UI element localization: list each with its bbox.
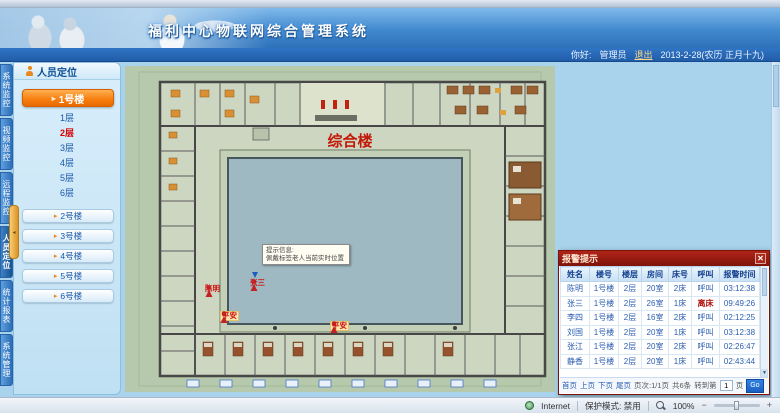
alarm-row[interactable]: 张江1号楼2层 20室2床 呼叫02:26:47 bbox=[561, 340, 760, 355]
column-header: 楼号 bbox=[590, 267, 619, 282]
nav-tab[interactable]: 统计报表 bbox=[0, 280, 13, 332]
nav-tab-label: 系统管理 bbox=[1, 342, 12, 378]
alarm-popup: 报警提示 ✕ 姓名楼号楼层房间床号呼叫报警时间 陈明1号楼 bbox=[558, 250, 770, 395]
divider bbox=[648, 401, 649, 411]
zoom-out-button[interactable]: − bbox=[701, 401, 706, 410]
zoom-level: 100% bbox=[673, 401, 695, 411]
person-marker[interactable]: 平安 bbox=[220, 311, 239, 321]
floor-list: 1层 2层 3层 4层 5层 6层 bbox=[14, 113, 120, 199]
person-marker-icon bbox=[250, 279, 258, 291]
sidebar-collapse-handle[interactable]: ◂ bbox=[9, 205, 19, 259]
building-button[interactable]: 4号楼 bbox=[22, 249, 114, 263]
page-last-link[interactable]: 尾页 bbox=[616, 380, 631, 391]
person-marker-icon bbox=[330, 321, 338, 333]
page-next-link[interactable]: 下页 bbox=[598, 380, 613, 391]
building-button-label: 4号楼 bbox=[60, 250, 82, 262]
zoom-in-button[interactable]: + bbox=[767, 401, 772, 410]
floor-item[interactable]: 2层 bbox=[60, 128, 74, 139]
greeting-label: 你好: bbox=[571, 48, 592, 61]
pin-icon bbox=[252, 272, 258, 278]
divider bbox=[577, 401, 578, 411]
app-title: 福利中心物联网综合管理系统 bbox=[148, 21, 369, 41]
nav-tab-label: 视频监控 bbox=[1, 126, 12, 162]
column-header: 报警时间 bbox=[720, 267, 760, 282]
page-info: 页次:1/1页 bbox=[634, 380, 669, 391]
floor-item[interactable]: 4层 bbox=[60, 158, 74, 169]
go-button[interactable]: Go bbox=[746, 379, 763, 393]
building-button[interactable]: 3号楼 bbox=[22, 229, 114, 243]
record-total: 共6条 bbox=[672, 380, 691, 391]
alarm-popup-title: 报警提示 bbox=[562, 252, 598, 265]
column-header: 呼叫 bbox=[692, 267, 720, 282]
alarm-scrollbar[interactable]: ▼ bbox=[760, 266, 768, 377]
globe-icon bbox=[525, 401, 534, 410]
nav-tab[interactable]: 视频监控 bbox=[0, 118, 13, 170]
floor-item[interactable]: 1层 bbox=[60, 113, 74, 124]
zoom-slider-thumb[interactable] bbox=[734, 401, 739, 410]
nav-tab-label: 系统监控 bbox=[1, 72, 12, 108]
goto-page-input[interactable] bbox=[720, 380, 733, 391]
alarm-row[interactable]: 张三1号楼2层 26室1床 离床09:49:26 bbox=[561, 296, 760, 311]
browser-statusbar: Internet 保护模式: 禁用 100% − + bbox=[0, 397, 780, 413]
tooltip-line2: 佩戴标签老人当前实时位置 bbox=[266, 255, 346, 263]
column-header: 房间 bbox=[642, 267, 669, 282]
magnifier-icon bbox=[656, 401, 666, 411]
logout-link[interactable]: 退出 bbox=[634, 48, 652, 61]
building-button-label: 6号楼 bbox=[60, 290, 82, 302]
person-marker-icon bbox=[205, 285, 213, 297]
floor-item[interactable]: 6层 bbox=[60, 188, 74, 199]
building-list: 2号楼 3号楼 4号楼 5号楼 6号楼 bbox=[22, 209, 114, 303]
building-button[interactable]: 6号楼 bbox=[22, 289, 114, 303]
alarm-table: 姓名楼号楼层房间床号呼叫报警时间 陈明1号楼2层 20室2床 呼叫03:12:3… bbox=[560, 266, 760, 369]
person-marker[interactable]: 平安 bbox=[330, 321, 349, 331]
pagination-bar: 首页 上页 下页 尾页 页次:1/1页 共6条 转到第 页 Go bbox=[560, 377, 768, 393]
location-tooltip: 提示信息: 佩戴标签老人当前实时位置 bbox=[262, 244, 350, 265]
alarm-popup-titlebar: 报警提示 ✕ bbox=[559, 251, 769, 266]
building-button[interactable]: 5号楼 bbox=[22, 269, 114, 283]
alarm-table-container: 姓名楼号楼层房间床号呼叫报警时间 陈明1号楼2层 20室2床 呼叫03:12:3… bbox=[560, 266, 760, 377]
person-icon bbox=[26, 66, 33, 76]
goto-prefix: 转到第 bbox=[694, 380, 717, 391]
zone-label: Internet bbox=[541, 401, 570, 411]
building-button-label: 3号楼 bbox=[60, 230, 82, 242]
alarm-scrollbar-thumb[interactable] bbox=[762, 268, 767, 296]
nav-tab-label: 统计报表 bbox=[1, 288, 12, 324]
main-area: 系统监控 视频监控 远程监控 人员定位 统计报表 系统管理 人 bbox=[0, 62, 780, 397]
protected-mode-label: 保护模式: 禁用 bbox=[585, 400, 641, 412]
header-banner: 福利中心物联网综合管理系统 bbox=[0, 8, 780, 48]
alarm-row[interactable]: 李四1号楼2层 16室2床 呼叫02:12:25 bbox=[561, 311, 760, 326]
building-button[interactable]: 2号楼 bbox=[22, 209, 114, 223]
user-info-bar: 你好: 管理员 退出 2013-2-28(农历 正月十九) bbox=[0, 48, 780, 62]
alarm-row[interactable]: 陈明1号楼2层 20室2床 呼叫03:12:38 bbox=[561, 282, 760, 297]
browser-edge-strip bbox=[0, 0, 780, 8]
date-text: 2013-2-28(农历 正月十九) bbox=[660, 48, 764, 61]
column-header: 姓名 bbox=[561, 267, 590, 282]
person-marker[interactable]: 陈明 bbox=[205, 285, 220, 293]
building-1-label: 1号楼 bbox=[59, 91, 85, 106]
page-prev-link[interactable]: 上页 bbox=[580, 380, 595, 391]
username: 管理员 bbox=[599, 48, 626, 61]
page-first-link[interactable]: 首页 bbox=[562, 380, 577, 391]
alarm-row[interactable]: 刘国1号楼2层 20室1床 呼叫03:12:38 bbox=[561, 325, 760, 340]
floorplan-area: 综合楼 提示信息: 佩戴标签老人当前实时位置 陈明 张三 平安 bbox=[125, 66, 555, 392]
person-marker[interactable]: 张三 bbox=[250, 279, 265, 287]
sidebar-panel-header: 人员定位 bbox=[14, 63, 120, 80]
page-scrollbar-thumb[interactable] bbox=[773, 65, 779, 107]
floor-item[interactable]: 3层 bbox=[60, 143, 74, 154]
page-scrollbar[interactable] bbox=[771, 62, 780, 397]
floorplan-svg: 综合楼 bbox=[125, 66, 555, 392]
person-marker-icon bbox=[220, 311, 228, 323]
sidebar-panel-title: 人员定位 bbox=[37, 64, 77, 79]
goto-suffix: 页 bbox=[736, 380, 744, 391]
scroll-down-icon[interactable]: ▼ bbox=[761, 369, 768, 377]
alarm-row[interactable]: 静香1号楼2层 20室1床 呼叫02:43:44 bbox=[561, 354, 760, 369]
column-header: 楼层 bbox=[619, 267, 642, 282]
nav-tab[interactable]: 系统监控 bbox=[0, 64, 13, 116]
location-sidebar: 人员定位 1号楼 1层 2层 3层 4层 5层 6层 2号楼 bbox=[13, 62, 121, 395]
building-button-label: 5号楼 bbox=[60, 270, 82, 282]
zoom-slider[interactable] bbox=[714, 404, 760, 407]
nav-tab[interactable]: 系统管理 bbox=[0, 334, 13, 386]
column-header: 床号 bbox=[669, 267, 692, 282]
floor-item[interactable]: 5层 bbox=[60, 173, 74, 184]
close-icon[interactable]: ✕ bbox=[755, 253, 766, 264]
building-1-button[interactable]: 1号楼 bbox=[22, 89, 114, 107]
building-button-label: 2号楼 bbox=[60, 210, 82, 222]
building-label-text: 综合楼 bbox=[327, 132, 372, 150]
